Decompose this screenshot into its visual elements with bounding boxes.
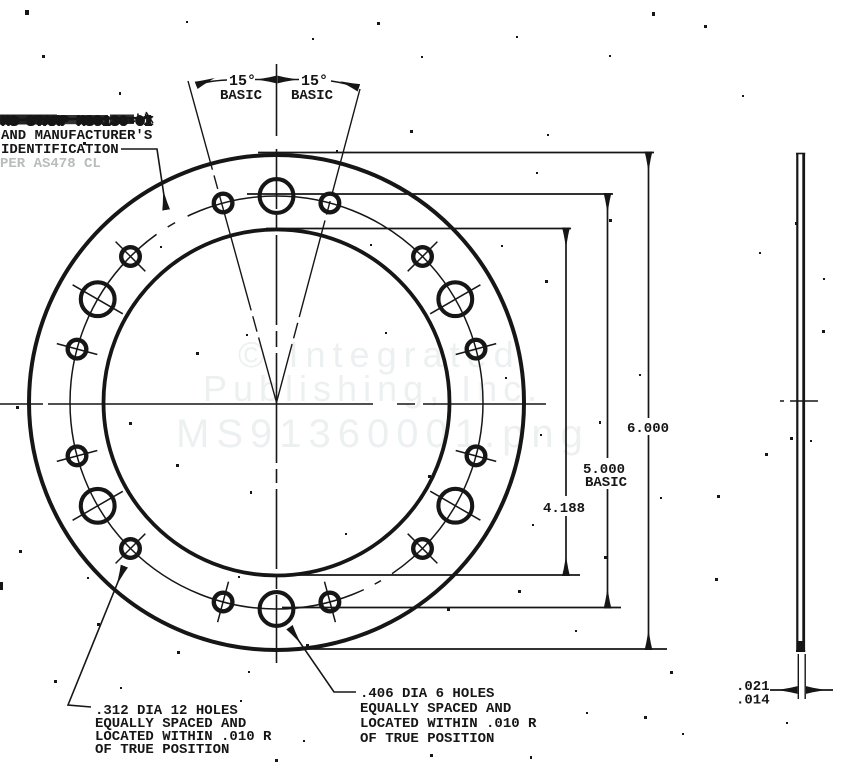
svg-text:OF TRUE POSITION: OF TRUE POSITION (95, 742, 229, 758)
svg-text:BASIC: BASIC (585, 475, 628, 491)
svg-text:EQUALLY SPACED AND: EQUALLY SPACED AND (360, 701, 511, 717)
svg-text:4.188: 4.188 (543, 501, 585, 517)
svg-text:PER AS478 CL: PER AS478 CL (0, 156, 101, 172)
svg-text:.406 DIA 6 HOLES: .406 DIA 6 HOLES (360, 686, 494, 702)
svg-text:Publishing, Inc.: Publishing, Inc. (203, 368, 543, 409)
svg-text:LOCATED WITHIN .010 R: LOCATED WITHIN .010 R (360, 716, 537, 732)
svg-text:6.000: 6.000 (627, 421, 669, 437)
svg-text:BASIC: BASIC (291, 88, 334, 104)
svg-text:BASIC: BASIC (220, 88, 263, 104)
svg-text:OF TRUE POSITION: OF TRUE POSITION (360, 731, 494, 747)
svg-text:.014: .014 (736, 693, 770, 709)
svg-text:MS91360001.png: MS91360001.png (176, 412, 590, 456)
